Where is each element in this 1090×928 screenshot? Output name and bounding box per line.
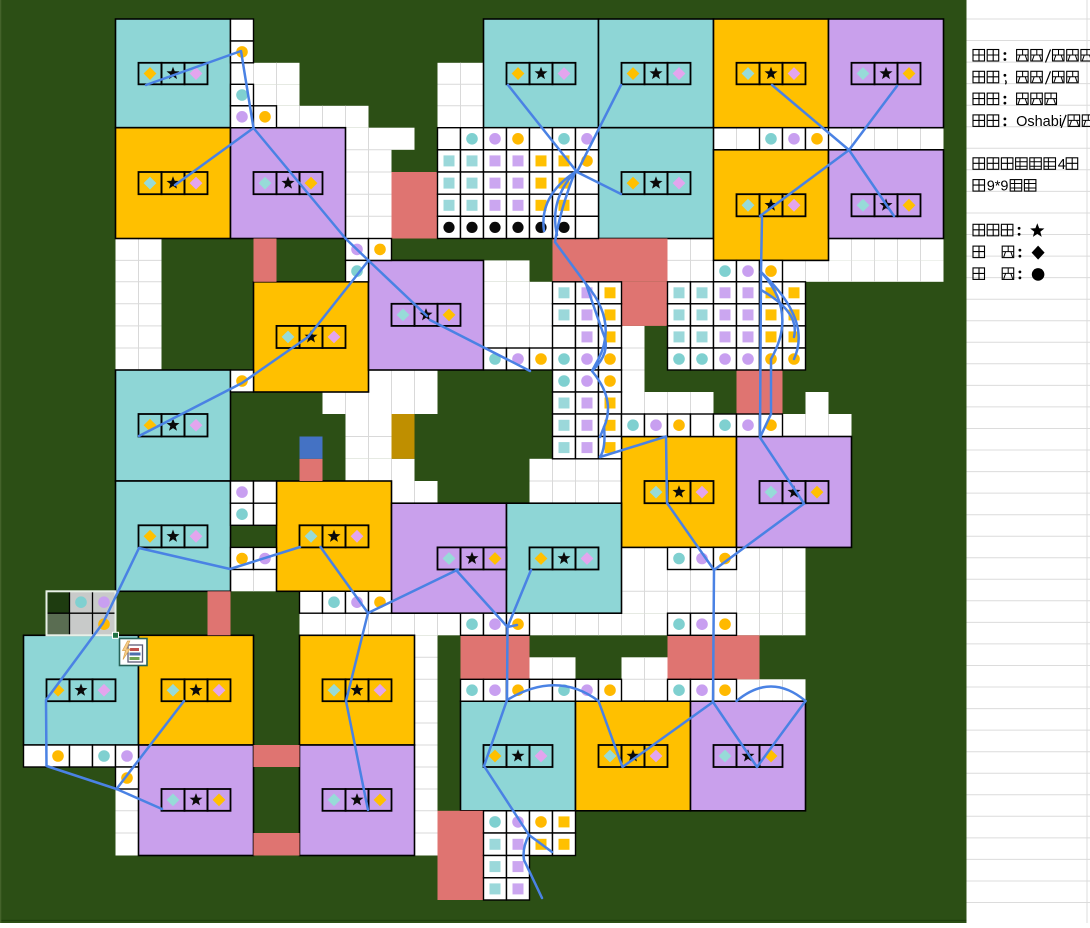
svg-text:4: 4 xyxy=(1058,157,1066,173)
svg-text:9*9: 9*9 xyxy=(987,179,1009,195)
svg-text:Oshabi: Oshabi xyxy=(1016,114,1062,130)
